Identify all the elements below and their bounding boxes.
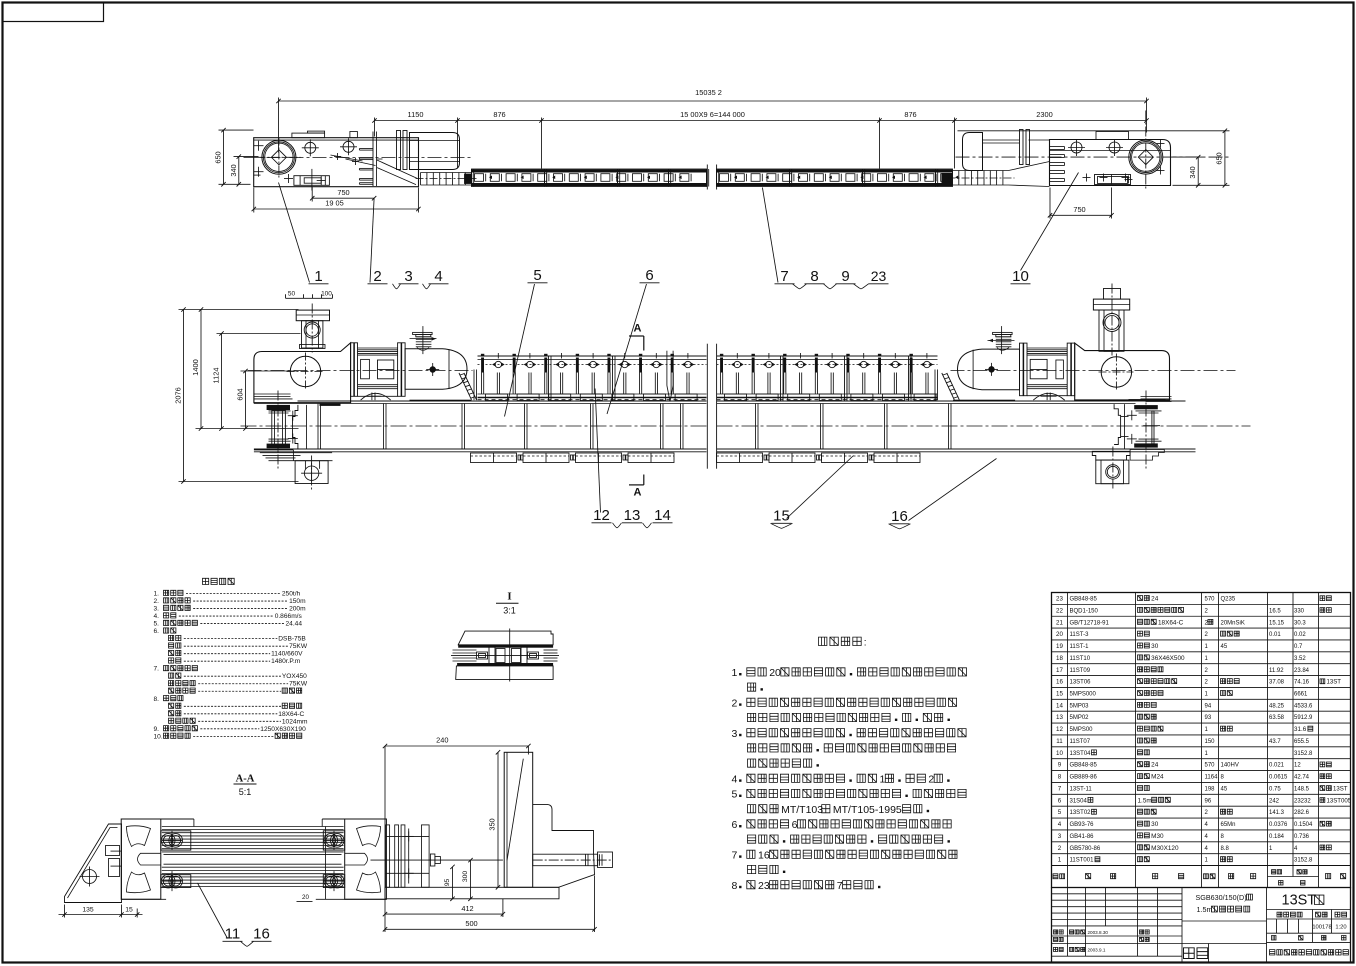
svg-text:135: 135 xyxy=(82,907,94,914)
svg-text:9: 9 xyxy=(1058,762,1062,769)
svg-text:36X46X500: 36X46X500 xyxy=(1151,655,1185,662)
svg-text:5:1: 5:1 xyxy=(239,787,252,797)
svg-text:13ST005: 13ST005 xyxy=(1326,797,1351,804)
svg-text:10: 10 xyxy=(1056,750,1063,757)
svg-text:4533.6: 4533.6 xyxy=(1294,703,1313,709)
svg-text:340: 340 xyxy=(1188,166,1197,178)
svg-text:50: 50 xyxy=(288,291,296,298)
svg-text:5912.9: 5912.9 xyxy=(1294,715,1313,721)
svg-text:1.: 1. xyxy=(154,591,160,598)
svg-text:12: 12 xyxy=(1294,763,1301,769)
svg-text:96: 96 xyxy=(1205,798,1212,804)
svg-text:0.736: 0.736 xyxy=(1294,834,1310,840)
svg-text:16: 16 xyxy=(253,926,270,943)
svg-text:6: 6 xyxy=(792,819,798,831)
svg-text:8: 8 xyxy=(1058,774,1062,781)
svg-text:24: 24 xyxy=(1151,762,1159,769)
svg-text:19 05: 19 05 xyxy=(325,199,344,208)
svg-text:GB93-76: GB93-76 xyxy=(1070,822,1095,828)
svg-text:340: 340 xyxy=(229,164,238,176)
svg-text:7: 7 xyxy=(1058,785,1062,792)
svg-text:GB41-86: GB41-86 xyxy=(1070,834,1095,840)
svg-text:100178: 100178 xyxy=(1312,925,1331,931)
svg-text:8.8: 8.8 xyxy=(1221,846,1230,852)
svg-text:0.75: 0.75 xyxy=(1269,786,1281,792)
svg-text:94: 94 xyxy=(1205,703,1212,709)
svg-text:148.5: 148.5 xyxy=(1294,786,1310,792)
svg-text:75KW: 75KW xyxy=(289,681,308,688)
svg-text:2300: 2300 xyxy=(1036,110,1052,119)
svg-text:13: 13 xyxy=(1056,714,1063,721)
svg-text:15: 15 xyxy=(773,508,790,525)
svg-text:5.: 5. xyxy=(154,621,160,628)
svg-text:1480r.P.m: 1480r.P.m xyxy=(271,658,301,665)
svg-text:1150: 1150 xyxy=(408,110,424,119)
svg-text:0.021: 0.021 xyxy=(1269,763,1285,769)
svg-text:4.: 4. xyxy=(154,613,160,620)
svg-text:GB848-85: GB848-85 xyxy=(1070,763,1098,769)
svg-text:0.184: 0.184 xyxy=(1269,834,1285,840)
svg-text:BQD1-150: BQD1-150 xyxy=(1070,608,1099,614)
svg-text:MT/T103: MT/T103 xyxy=(781,804,823,816)
svg-text:570: 570 xyxy=(1205,763,1216,769)
svg-text:330: 330 xyxy=(1294,608,1305,614)
svg-text:4: 4 xyxy=(434,268,442,285)
svg-text:3.52: 3.52 xyxy=(1294,656,1306,662)
svg-text:21: 21 xyxy=(1056,619,1063,626)
svg-text:37.08: 37.08 xyxy=(1269,680,1285,686)
svg-text:150: 150 xyxy=(1205,739,1216,745)
svg-text:6: 6 xyxy=(1058,797,1062,804)
svg-text:6.: 6. xyxy=(154,628,160,635)
svg-text:5: 5 xyxy=(1058,809,1062,816)
svg-text:13ST: 13ST xyxy=(1326,679,1341,686)
svg-text:20: 20 xyxy=(1056,631,1063,638)
svg-text:250t/h: 250t/h xyxy=(282,591,301,598)
svg-text:141.3: 141.3 xyxy=(1269,810,1285,816)
svg-text:0.866m/s: 0.866m/s xyxy=(275,613,303,620)
svg-text:24: 24 xyxy=(1151,596,1159,603)
svg-text:0.7: 0.7 xyxy=(1294,644,1303,650)
svg-text:5MPS00: 5MPS00 xyxy=(1070,727,1094,733)
svg-text:17: 17 xyxy=(1056,667,1063,674)
svg-text:65Mn: 65Mn xyxy=(1221,822,1236,828)
svg-text:16.5: 16.5 xyxy=(1269,608,1281,614)
svg-text:GB889-86: GB889-86 xyxy=(1070,775,1098,781)
svg-text:15: 15 xyxy=(125,907,133,914)
svg-text:8.: 8. xyxy=(154,696,160,703)
svg-text:I: I xyxy=(507,591,511,603)
svg-text:23232: 23232 xyxy=(1294,798,1311,804)
svg-text:Q235: Q235 xyxy=(1221,597,1236,603)
svg-text:23: 23 xyxy=(758,880,770,892)
svg-text:4: 4 xyxy=(1058,821,1062,828)
svg-text:30: 30 xyxy=(1151,821,1159,828)
svg-text:MT/T105-1995: MT/T105-1995 xyxy=(833,804,902,816)
svg-text:22: 22 xyxy=(1056,607,1063,614)
svg-text:11ST07: 11ST07 xyxy=(1070,739,1091,745)
svg-text:282.6: 282.6 xyxy=(1294,810,1310,816)
svg-text:750: 750 xyxy=(337,188,349,197)
svg-text:1: 1 xyxy=(314,268,322,285)
svg-text:0.01: 0.01 xyxy=(1269,632,1281,638)
svg-text:7.: 7. xyxy=(154,666,160,673)
svg-text:DSB-75B: DSB-75B xyxy=(278,636,306,643)
svg-text:11ST10: 11ST10 xyxy=(1070,656,1091,662)
svg-text:5MPS000: 5MPS000 xyxy=(1070,691,1097,697)
svg-text:12: 12 xyxy=(1056,726,1063,733)
svg-text:30.3: 30.3 xyxy=(1294,620,1306,626)
svg-text:9.: 9. xyxy=(154,726,160,733)
svg-text:M30: M30 xyxy=(1151,833,1164,840)
svg-text:63.58: 63.58 xyxy=(1269,715,1285,721)
svg-text:650: 650 xyxy=(1215,152,1224,164)
svg-text:0.02: 0.02 xyxy=(1294,632,1306,638)
svg-text:3152.8: 3152.8 xyxy=(1294,751,1313,757)
svg-text:1:20: 1:20 xyxy=(1335,925,1346,931)
svg-text:2076: 2076 xyxy=(174,387,183,403)
svg-text:20: 20 xyxy=(769,667,781,679)
svg-text:650: 650 xyxy=(214,151,223,163)
svg-text:1250X630X190: 1250X630X190 xyxy=(260,726,306,733)
svg-text:242: 242 xyxy=(1269,798,1280,804)
svg-text:655.5: 655.5 xyxy=(1294,739,1310,745)
svg-text:3: 3 xyxy=(732,728,738,740)
svg-text:350: 350 xyxy=(488,818,497,830)
svg-text:1164: 1164 xyxy=(1205,775,1219,781)
svg-text:13ST06: 13ST06 xyxy=(1070,680,1092,686)
svg-text:6661: 6661 xyxy=(1294,691,1308,697)
svg-text:1140/660V: 1140/660V xyxy=(271,651,303,658)
svg-text:13ST: 13ST xyxy=(1333,785,1348,792)
svg-text:10.: 10. xyxy=(154,733,163,740)
svg-text:500: 500 xyxy=(465,919,477,928)
svg-text:2: 2 xyxy=(1058,845,1062,852)
svg-text:2: 2 xyxy=(373,268,381,285)
svg-text:13ST-11: 13ST-11 xyxy=(1070,786,1093,792)
svg-text:2003.9.1: 2003.9.1 xyxy=(1088,948,1106,953)
svg-text:5: 5 xyxy=(732,789,738,801)
svg-text:16: 16 xyxy=(1056,679,1063,686)
svg-text:11: 11 xyxy=(1056,738,1063,745)
svg-text:13ST02: 13ST02 xyxy=(1070,810,1092,816)
svg-text:6: 6 xyxy=(645,267,653,284)
svg-text:1.5m: 1.5m xyxy=(1138,797,1152,804)
svg-text:13ST: 13ST xyxy=(1282,893,1317,909)
svg-text:11ST001: 11ST001 xyxy=(1070,858,1095,864)
svg-text:GB/T12718-91: GB/T12718-91 xyxy=(1070,620,1110,626)
svg-text:0.0615: 0.0615 xyxy=(1269,775,1288,781)
svg-text:93: 93 xyxy=(1205,715,1212,721)
svg-text:11ST-1: 11ST-1 xyxy=(1070,644,1090,650)
svg-text:1024mm: 1024mm xyxy=(282,718,308,725)
svg-text:0.0376: 0.0376 xyxy=(1269,822,1288,828)
svg-text:13: 13 xyxy=(624,507,641,524)
svg-text:74.16: 74.16 xyxy=(1294,680,1310,686)
svg-text:A-A: A-A xyxy=(236,774,255,785)
svg-text:15035 2: 15035 2 xyxy=(695,88,722,97)
svg-text:876: 876 xyxy=(493,110,505,119)
svg-text:10: 10 xyxy=(1012,268,1029,285)
svg-text:140HV: 140HV xyxy=(1221,763,1239,769)
svg-text:43.7: 43.7 xyxy=(1269,739,1281,745)
svg-text:5MP02: 5MP02 xyxy=(1070,715,1090,721)
svg-text:14: 14 xyxy=(1056,702,1063,709)
svg-text:YOX450: YOX450 xyxy=(282,673,307,680)
svg-text:4: 4 xyxy=(732,773,738,785)
svg-text:7: 7 xyxy=(837,880,843,892)
svg-text:M24: M24 xyxy=(1151,774,1164,781)
svg-text:15.15: 15.15 xyxy=(1269,620,1285,626)
svg-text:3.: 3. xyxy=(154,606,160,613)
svg-text:240: 240 xyxy=(436,736,448,745)
svg-text:8: 8 xyxy=(810,268,818,285)
svg-text:1400: 1400 xyxy=(191,359,200,375)
svg-text:24.44: 24.44 xyxy=(286,621,303,628)
svg-text:A: A xyxy=(634,323,642,335)
svg-text:150m: 150m xyxy=(289,598,306,605)
svg-text:5MP03: 5MP03 xyxy=(1070,703,1090,709)
svg-text:412: 412 xyxy=(461,904,473,913)
svg-text:20: 20 xyxy=(302,894,309,901)
svg-text:20MnSiK: 20MnSiK xyxy=(1221,620,1245,626)
svg-text:100: 100 xyxy=(321,291,332,298)
svg-text:48.25: 48.25 xyxy=(1269,703,1285,709)
svg-text:18X64-C: 18X64-C xyxy=(1158,619,1184,626)
svg-text:14: 14 xyxy=(654,507,671,524)
svg-text:SGB630/150(D): SGB630/150(D) xyxy=(1196,893,1247,902)
svg-text:75KW: 75KW xyxy=(289,643,308,650)
svg-text:2: 2 xyxy=(928,773,934,785)
svg-text:2003.8.30: 2003.8.30 xyxy=(1088,930,1109,935)
svg-text:95: 95 xyxy=(444,879,451,887)
svg-text:15: 15 xyxy=(1056,690,1063,697)
svg-text:3152.8: 3152.8 xyxy=(1294,858,1313,864)
svg-text:23.84: 23.84 xyxy=(1294,668,1310,674)
svg-text:45: 45 xyxy=(1221,786,1228,792)
svg-text:2.: 2. xyxy=(154,598,160,605)
svg-text:23: 23 xyxy=(1056,596,1063,603)
svg-text:M30X120: M30X120 xyxy=(1151,845,1179,852)
svg-text:198: 198 xyxy=(1205,786,1216,792)
svg-text:13ST04: 13ST04 xyxy=(1070,751,1092,757)
svg-text:42.74: 42.74 xyxy=(1294,775,1310,781)
svg-text:31S04: 31S04 xyxy=(1070,798,1088,804)
svg-text:3:1: 3:1 xyxy=(503,606,516,616)
svg-text:11ST-3: 11ST-3 xyxy=(1070,632,1090,638)
svg-text:1.5m: 1.5m xyxy=(1197,905,1213,914)
svg-text:1: 1 xyxy=(1058,857,1062,864)
svg-text:7: 7 xyxy=(732,849,738,861)
svg-text:16: 16 xyxy=(758,849,770,861)
svg-text:GB848-85: GB848-85 xyxy=(1070,597,1098,603)
svg-text:9: 9 xyxy=(841,268,849,285)
svg-text:18: 18 xyxy=(1056,655,1063,662)
svg-text:31.6: 31.6 xyxy=(1294,726,1307,733)
svg-text:23: 23 xyxy=(871,268,887,284)
svg-text:45: 45 xyxy=(1221,644,1228,650)
svg-text:1: 1 xyxy=(732,667,738,679)
svg-text:570: 570 xyxy=(1205,597,1216,603)
svg-text:11.92: 11.92 xyxy=(1269,668,1284,674)
svg-text:200m: 200m xyxy=(289,606,306,613)
svg-text:11ST09: 11ST09 xyxy=(1070,668,1091,674)
svg-text:12: 12 xyxy=(593,507,610,524)
svg-text:30: 30 xyxy=(1151,643,1159,650)
svg-text:300: 300 xyxy=(462,871,469,883)
svg-text:19: 19 xyxy=(1056,643,1063,650)
svg-text:A: A xyxy=(634,487,642,499)
svg-text:0.1504: 0.1504 xyxy=(1294,822,1313,828)
svg-text:3: 3 xyxy=(1058,833,1062,840)
svg-text:3: 3 xyxy=(404,268,412,285)
svg-text:15 00X9 6=144 000: 15 00X9 6=144 000 xyxy=(680,110,745,119)
svg-text:5: 5 xyxy=(533,267,541,284)
svg-text:1: 1 xyxy=(880,773,886,785)
svg-text:750: 750 xyxy=(1073,205,1085,214)
svg-text:604: 604 xyxy=(236,388,245,400)
svg-text:876: 876 xyxy=(904,110,916,119)
svg-text:2: 2 xyxy=(732,697,738,709)
svg-text:GB5780-86: GB5780-86 xyxy=(1070,846,1101,852)
svg-text:8: 8 xyxy=(732,880,738,892)
svg-text::: : xyxy=(864,638,867,649)
svg-text:6: 6 xyxy=(732,819,738,831)
svg-text:16: 16 xyxy=(891,508,908,525)
svg-text:18X64-C: 18X64-C xyxy=(278,711,304,718)
svg-text:1124: 1124 xyxy=(212,368,221,384)
svg-text:11: 11 xyxy=(225,926,241,943)
svg-text:7: 7 xyxy=(780,268,788,285)
